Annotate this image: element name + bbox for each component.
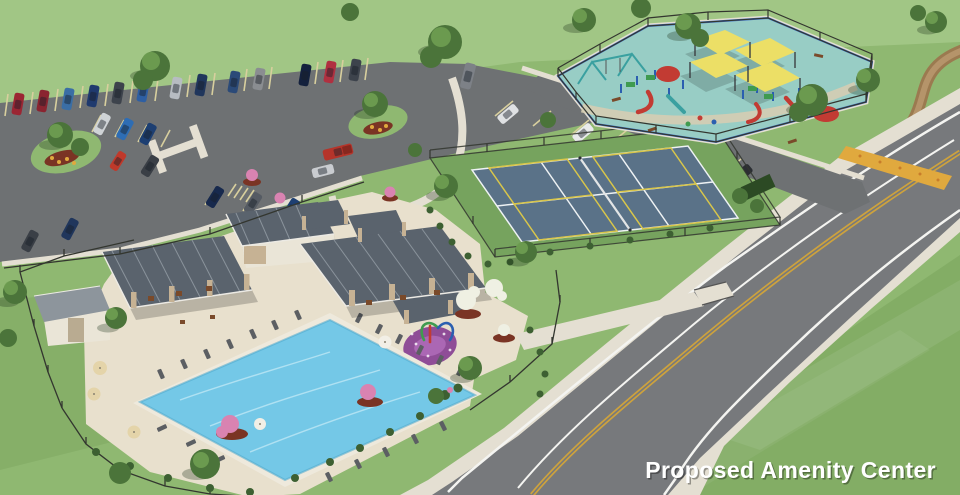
dome-climber xyxy=(656,66,680,82)
caption: Proposed Amenity Center Proposed Amenity… xyxy=(645,457,937,485)
clubhouse-stone-accent xyxy=(244,246,266,264)
caption-text: Proposed Amenity Center xyxy=(645,457,936,483)
amenity-center-rendering: Proposed Amenity Center Proposed Amenity… xyxy=(0,0,960,495)
shed-door xyxy=(68,318,84,342)
